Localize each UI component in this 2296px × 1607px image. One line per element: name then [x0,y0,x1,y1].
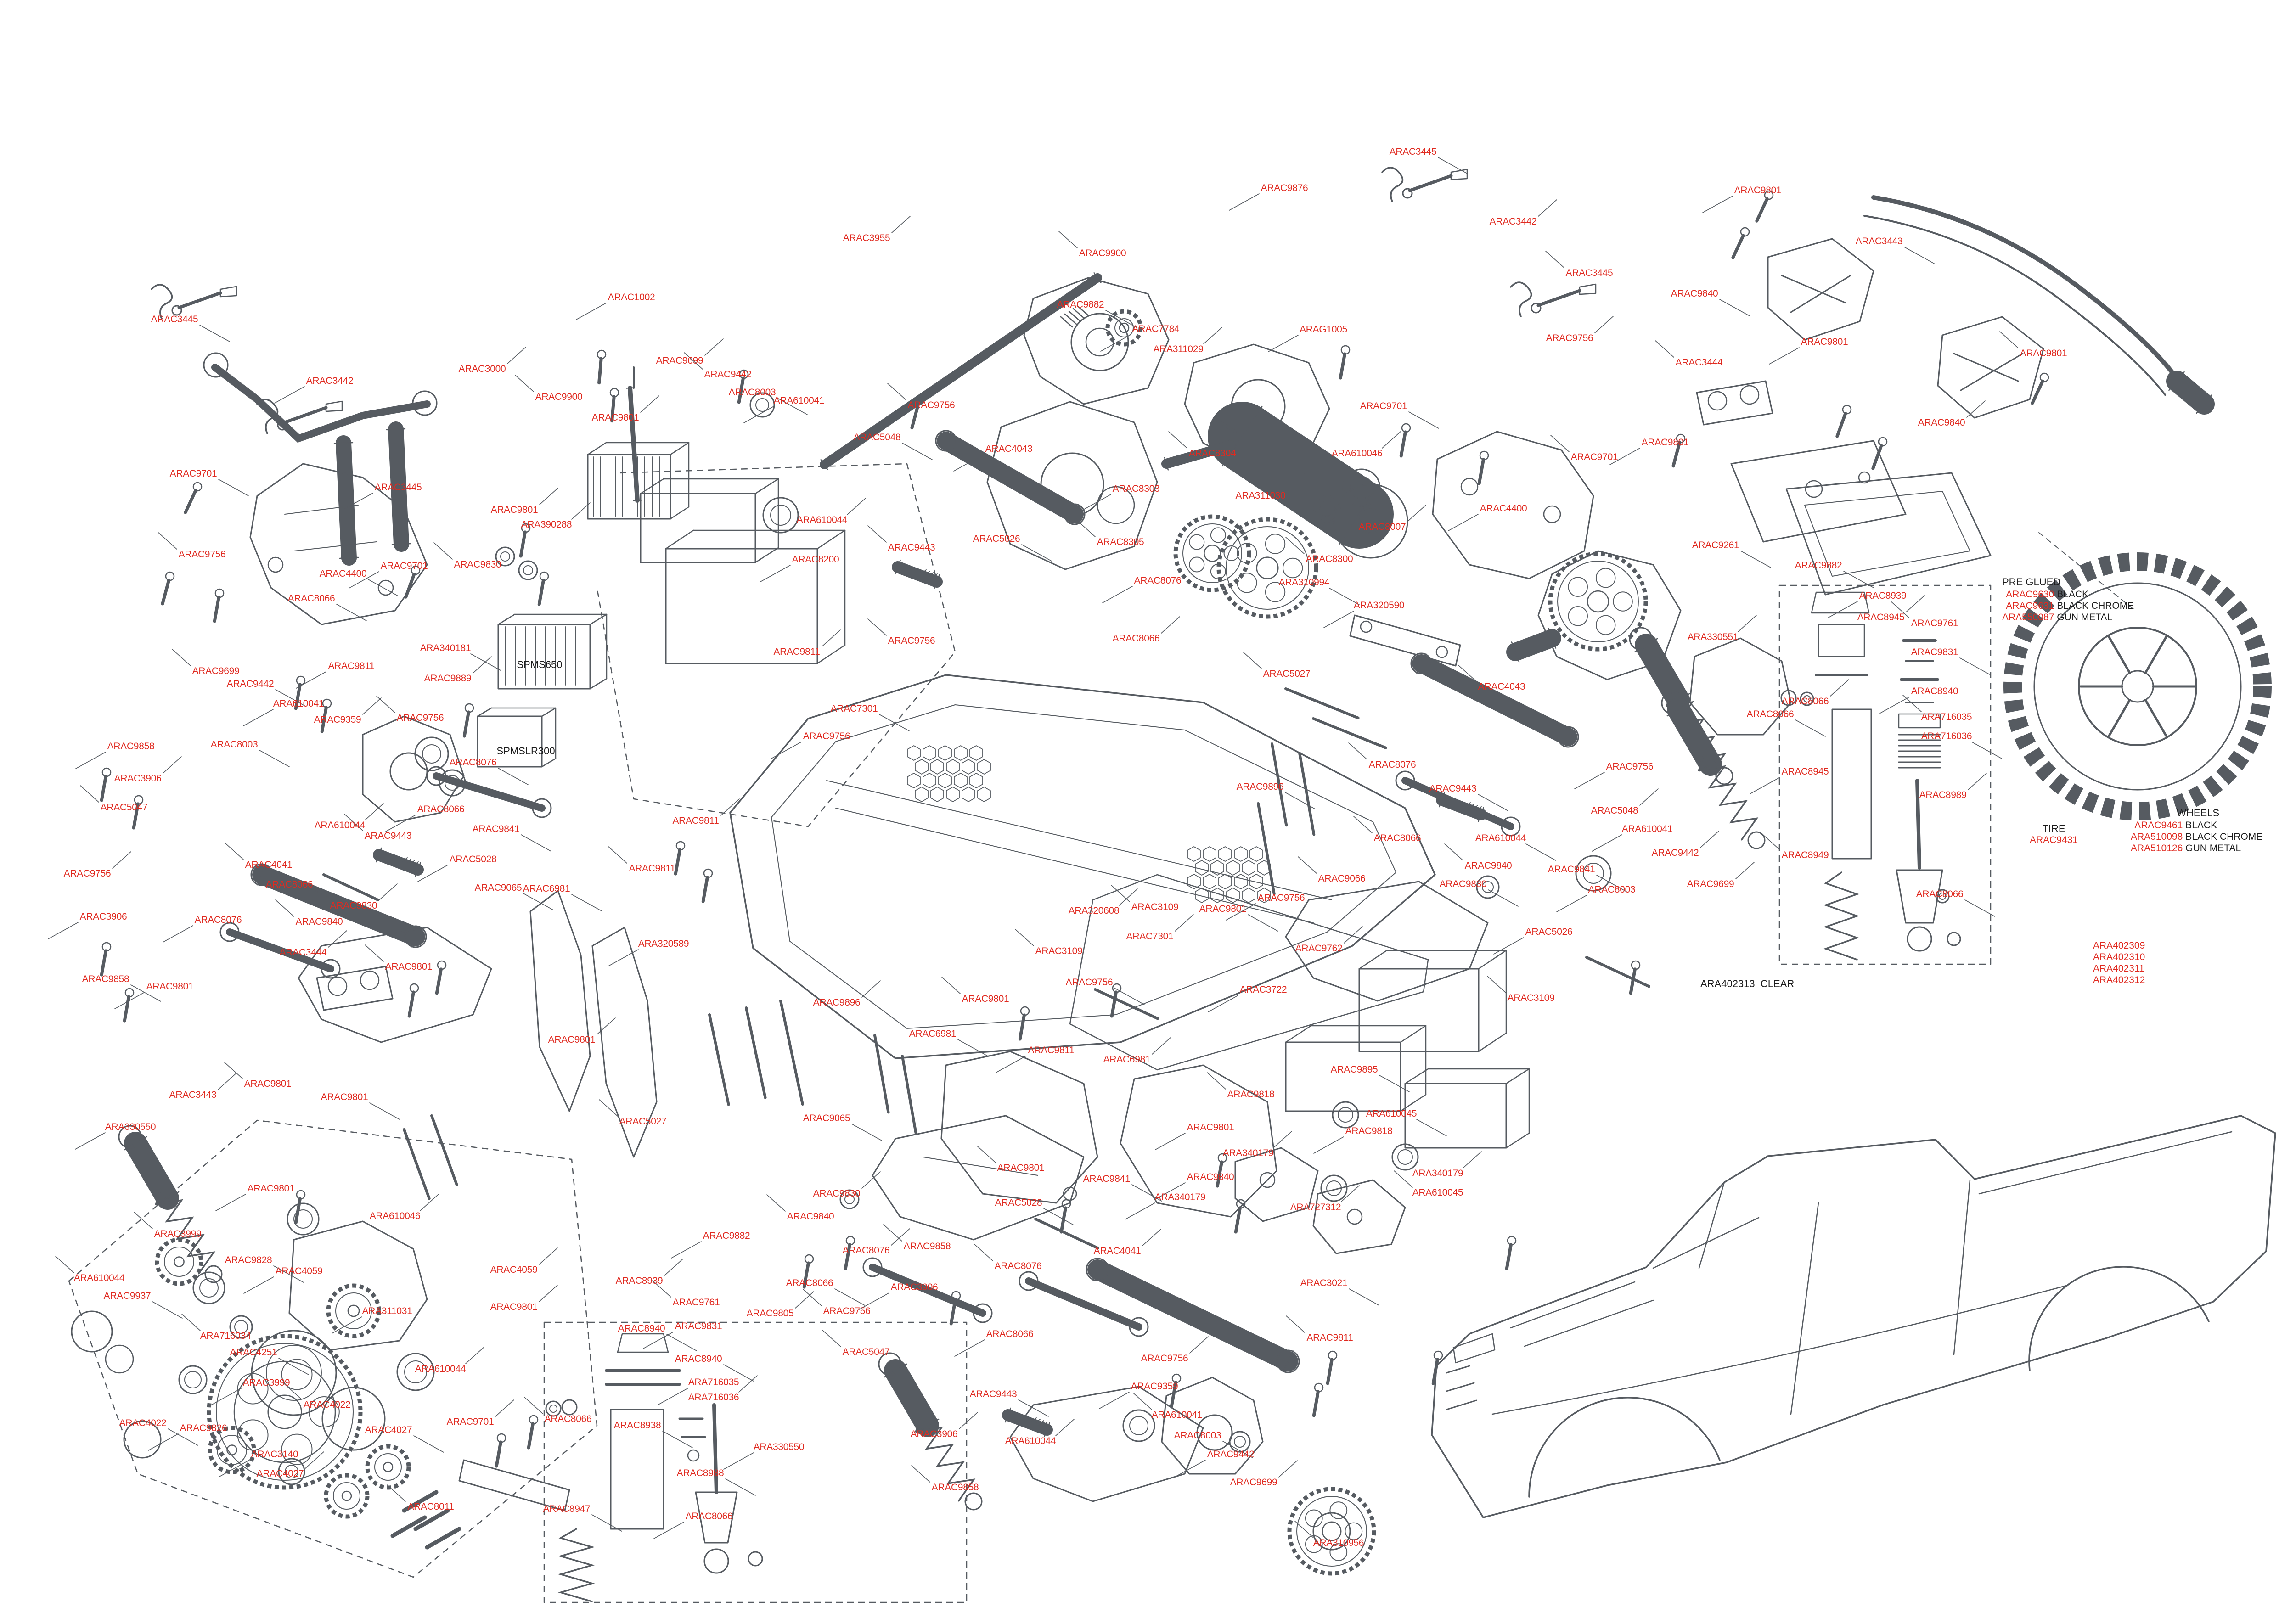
part-label: ARAC8066 [417,804,465,815]
part-label: ARAC9840 [787,1211,834,1222]
part-label: ARAC9818 [1227,1089,1275,1100]
part-label: ARAC6981 [1103,1054,1151,1065]
part-label: ARA310956 [1313,1538,1364,1549]
part-label: ARAC9858 [107,741,155,752]
part-label: ARAC3722 [1240,984,1287,995]
part-label: ARA716036 [688,1392,739,1403]
part-label: ARAC5028 [995,1197,1042,1208]
part-label: ARAC4041 [245,860,293,871]
part-label: ARA610044 [1005,1436,1056,1447]
tire-title: TIRE [2030,823,2078,835]
body-paint-code: ARA402312 [2093,974,2145,986]
part-label: ARAC3000 [459,364,506,375]
part-label: ARA610041 [774,395,825,406]
part-label: ARAC7301 [831,703,878,714]
part-label: ARAC9811 [328,661,374,672]
part-label: ARAC3444 [280,947,327,958]
legend-row: ARAC9630BLACK [2002,589,2137,600]
part-label: ARAC9756 [397,713,444,724]
part-label: ARAC9801 [244,1079,292,1090]
part-label: ARA610046 [370,1211,421,1222]
part-label: ARAC4400 [1480,503,1527,514]
part-label: ARAC9756 [1606,761,1654,772]
part-label: ARAC5048 [854,432,901,443]
legend-row: ARAC9461BLACK [2131,820,2265,831]
part-label: ARAC9801 [490,1302,538,1313]
part-label: ARAC9701 [170,468,217,479]
part-label: ARAC8940 [618,1323,665,1334]
part-label: ARAC8066 [986,1329,1034,1340]
part-label: ARAC9701 [381,561,428,572]
electronics-label: SPMSLR300 [496,745,555,757]
part-label: ARAC9811 [629,863,675,874]
part-label: ARAC9840 [1187,1172,1234,1183]
part-label: ARAC9443 [1429,783,1477,794]
part-label: ARAC9841 [473,824,520,835]
part-label: ARAC3442 [306,376,354,387]
part-label: ARAC3445 [375,482,422,493]
part-label: ARAC9831 [1911,647,1958,658]
part-label: ARAC9443 [365,831,412,842]
pre-glued-title: PRE GLUED [2002,576,2137,588]
part-label: ARAC5047 [101,802,148,813]
part-label: ARAC9841 [1083,1174,1131,1185]
part-label: ARAC9896 [813,997,861,1008]
part-label: ARAC4059 [276,1266,323,1277]
part-label: ARAC9756 [1258,893,1305,904]
part-label: ARA610044 [315,820,366,831]
part-label: ARAC3445 [151,314,198,325]
part-label: ARA311030 [1236,490,1286,501]
part-label: ARAC6981 [523,883,570,894]
part-label: ARAC8066 [266,879,313,890]
part-label: ARAC3444 [1676,357,1723,368]
part-label: ARAC9442 [1652,848,1699,859]
part-label: ARAC5027 [619,1116,667,1127]
part-label: ARAC9858 [82,974,129,985]
legend-part-code: ARA550087 [2002,612,2057,623]
part-label: ARAC8304 [1189,448,1236,459]
part-label: ARAC8200 [792,554,839,565]
part-label: ARAC9801 [548,1034,596,1045]
exploded-parts-diagram: ARAC3445ARAC3442ARAC3000ARAC9900ARAC9701… [0,0,2296,1607]
part-label: ARAC8989 [1919,790,1967,801]
part-label: ARAC3906 [891,1282,938,1293]
part-label: ARA610041 [1152,1410,1203,1421]
part-label: ARAC8066 [786,1278,833,1289]
part-label: ARAC9756 [1546,333,1593,344]
part-label: ARAC8940 [1911,686,1958,697]
part-label: ARAC9801 [2020,348,2067,359]
part-label: ARAC8066 [1747,709,1794,720]
part-label: ARAC9801 [491,505,538,516]
part-label: ARAC8076 [843,1245,890,1256]
part-label: ARAC9756 [888,635,935,646]
legend-row: ARA510126GUN METAL [2131,843,2265,854]
part-label: ARAC9818 [1345,1126,1393,1137]
part-label: ARAC4027 [257,1468,304,1479]
part-label: ARAC8938 [614,1420,661,1431]
part-label: ARAC3140 [251,1449,298,1460]
body-paint-codes: ARA402309ARA402310ARA402311ARA402312 [2093,940,2145,986]
part-label: ARAC9699 [1687,879,1734,890]
part-label: ARAC3906 [80,911,127,922]
part-label: ARAC3021 [1300,1278,1348,1289]
part-label: ARAC9443 [970,1389,1017,1400]
part-label: ARAC9882 [1057,299,1104,310]
part-label: ARAC9801 [1734,185,1782,196]
part-label: ARAC8303 [1113,483,1160,494]
part-label: ARAC9756 [1141,1353,1188,1364]
part-label: ARAC9801 [1642,437,1689,448]
part-label: ARA320590 [1354,600,1405,611]
part-label: ARAC3445 [1566,268,1613,279]
legend-color-name: BLACK [2185,820,2265,831]
part-label: ARAC8945 [1782,766,1829,777]
part-label: ARAC3443 [169,1090,217,1101]
part-label: ARA716036 [1921,731,1972,742]
part-label: ARAC3906 [911,1429,958,1440]
part-label: ARAC7301 [1126,931,1174,942]
part-label: ARAC8076 [450,757,497,768]
part-label: ARAC8939 [1859,590,1907,601]
part-label: ARA716035 [688,1377,739,1388]
part-label: ARA340179 [1412,1168,1463,1179]
part-label: ARA610044 [415,1364,466,1375]
part-label: ARAC9895 [1331,1064,1378,1075]
part-label: ARAC9840 [1918,417,1965,428]
part-label: ARAC3999 [154,1229,202,1240]
part-label: ARA727312 [1290,1202,1341,1213]
part-label: ARAC9762 [1295,943,1343,954]
part-label: ARAC8076 [1134,575,1182,586]
part-label: ARAC9811 [1028,1045,1074,1056]
part-label: ARAC9701 [1360,401,1407,412]
legend-color-name: BLACK CHROME [2185,831,2265,843]
part-label: ARA340179 [1223,1148,1274,1159]
part-label: ARAC9811 [1306,1332,1353,1343]
part-label: ARAC8949 [1782,850,1829,861]
part-label: ARA610045 [1366,1108,1417,1119]
legend-color-name: BLACK CHROME [2057,600,2137,612]
part-label: ARAC8076 [995,1261,1042,1272]
body-paint-code: ARA402310 [2093,951,2145,963]
legend-row: ARA550087GUN METAL [2002,612,2137,623]
part-label: ARAC4022 [304,1399,351,1410]
part-label: ARAC8066 [1916,889,1964,900]
part-label: ARAC9359 [1131,1381,1178,1392]
part-label: ARAC8988 [677,1468,724,1479]
part-label: ARAC9699 [1230,1477,1277,1488]
part-label: ARAC3109 [1131,902,1179,913]
part-label: ARAC9900 [1079,248,1126,259]
part-label: ARAC8003 [729,387,776,398]
body-clear-name: CLEAR [1761,978,1794,989]
part-label: ARA330550 [105,1122,156,1133]
part-label: ARAC9756 [179,549,226,560]
part-label: ARAC9858 [932,1482,979,1493]
part-label: ARAC9442 [1207,1449,1255,1460]
part-label: ARAC9801 [248,1183,295,1194]
part-label: ARA330550 [754,1442,805,1453]
part-label: ARAC9801 [962,994,1009,1005]
part-label: ARAC5026 [973,534,1020,545]
part-label: ARAC9761 [673,1297,720,1308]
part-label: ARAC4059 [490,1264,538,1275]
part-label: ARAC9896 [1237,781,1284,792]
part-label: ARAC9261 [1692,540,1739,551]
part-label: ARAC8007 [1359,522,1406,533]
part-label: ARAC9801 [1801,337,1848,348]
part-label: ARAC9840 [296,916,343,927]
part-label: ARAC8066 [1782,696,1829,707]
part-label: ARAC4043 [985,444,1033,455]
part-label: ARAC9801 [1187,1122,1234,1133]
body-paint-code: ARA402311 [2093,963,2145,974]
part-label: ARAC8945 [1857,612,1905,623]
part-label: ARAC3442 [1490,216,1537,227]
part-label: ARAC9841 [1548,864,1595,875]
part-label: ARAC9065 [803,1113,850,1124]
part-label: ARAC3445 [1390,146,1437,157]
electronics-label: SPMS650 [517,659,562,671]
legend-color-name: BLACK [2057,589,2137,600]
part-label: ARAC3955 [843,233,890,244]
part-label: ARAC8066 [288,593,335,604]
legend-part-code: ARAC9630 [2002,589,2057,600]
legend-row: ARA510098BLACK CHROME [2131,831,2265,843]
part-label: ARAC9699 [192,666,240,677]
part-label: ARAC8939 [616,1275,663,1287]
part-label: ARAC5048 [1591,805,1638,816]
part-label: ARAC9826 [180,1423,227,1434]
tire-code: ARAC9431 [2030,835,2078,846]
part-label: ARAC9442 [227,679,274,690]
part-label: ARAC9701 [447,1416,494,1427]
part-label: ARAC5027 [1263,669,1311,680]
part-label: ARAC9805 [747,1308,794,1319]
body-paint-code: ARA402309 [2093,940,2145,951]
part-label: ARA330551 [1688,632,1739,643]
part-label: ARA311029 [1154,344,1204,355]
part-label: ARAC9443 [888,542,935,553]
pre-glued-rows: ARAC9630BLACKARAC9631BLACK CHROMEARA5500… [2002,589,2137,623]
part-label: ARAC3999 [243,1377,290,1388]
part-label: ARA340179 [1155,1192,1206,1203]
legend-color-name: GUN METAL [2057,612,2137,623]
part-label: ARAC9756 [64,868,111,879]
part-label: ARAC8066 [686,1511,733,1522]
part-label: ARAC8011 [407,1501,454,1512]
part-label: ARAC9882 [703,1231,750,1242]
part-label: ARAC9840 [1671,288,1718,299]
part-label: ARAC4022 [119,1418,167,1429]
wheels-title: WHEELS [2131,807,2265,819]
part-label: ARAC4400 [320,568,367,579]
part-label: ARA610046 [1332,448,1383,459]
part-label: ARA610041 [1622,824,1673,835]
part-label: ARAC8076 [1369,759,1416,770]
part-label: ARAC8003 [1174,1430,1221,1441]
part-label: ARAC4041 [1094,1246,1141,1257]
part-label: ARAC8940 [675,1354,722,1365]
part-label: ARAC3109 [1035,946,1083,957]
part-label: ARAC9801 [385,961,433,972]
part-label: ARAC8305 [1097,537,1144,548]
part-label: ARAC1002 [608,292,655,303]
part-label: ARAC9830 [1440,879,1487,890]
part-label: ARAC8066 [1374,833,1421,844]
part-label: ARA610044 [797,515,848,526]
part-label: ARA610041 [273,698,324,709]
part-label: ARA610044 [74,1273,125,1284]
part-label: ARAC9699 [656,355,703,366]
part-label: ARAC9756 [803,731,850,742]
tire-note: TIRE ARAC9431 [2030,823,2078,846]
part-label: ARAC9831 [675,1321,722,1332]
part-label: ARAC9900 [535,392,583,403]
part-label: ARAC5026 [1525,927,1573,938]
part-label: ARAC9359 [314,714,361,725]
part-label: ARAC4043 [1478,681,1525,692]
part-label: ARA340181 [420,643,471,654]
part-label: ARA311031 [362,1306,412,1317]
part-label: ARAC5047 [843,1347,890,1358]
part-label: ARAC9801 [146,981,194,992]
part-label: ARAC8300 [1306,554,1353,565]
legend-row: ARAC9631BLACK CHROME [2002,600,2137,612]
part-label: ARAC8076 [195,915,242,926]
legend-part-code: ARA510098 [2131,831,2185,843]
body-clear-code: ARA402313 [1700,978,1755,989]
part-label: ARAC9801 [592,412,639,423]
part-label: ARA610044 [1475,833,1526,844]
part-label: ARAC8003 [211,739,258,750]
part-label: ARAC8003 [1588,884,1636,895]
part-label: ARAC9830 [813,1188,861,1199]
part-label: ARA716035 [1921,712,1972,723]
part-label: ARAC3906 [114,773,162,784]
part-label: ARAC9065 [475,882,522,893]
part-label: ARAG1005 [1300,324,1347,335]
part-label: ARAC9889 [424,673,472,684]
part-label: ARAC9858 [904,1241,951,1252]
part-label: ARAC9937 [104,1291,151,1302]
part-label: ARAC3109 [1508,993,1555,1004]
part-label: ARA320589 [638,938,689,950]
part-label: ARAC8066 [1113,633,1160,644]
wheels-legend: WHEELS ARAC9461BLACKARA510098BLACK CHROM… [2131,807,2265,854]
legend-part-code: ARAC9461 [2131,820,2185,831]
legend-part-code: ARAC9631 [2002,600,2057,612]
part-label: ARA610045 [1412,1187,1463,1198]
part-label: ARAC5028 [450,854,497,865]
part-label: ARAC9811 [672,815,719,826]
part-label: ARA320608 [1069,905,1120,916]
pre-glued-legend: PRE GLUED ARAC9630BLACKARAC9631BLACK CHR… [2002,576,2137,623]
part-label: ARAC9830 [454,559,501,570]
part-labels-layer: ARAC3445ARAC3442ARAC3000ARAC9900ARAC9701… [0,0,2296,1607]
part-label: ARAC9701 [1571,452,1618,463]
wheels-rows: ARAC9461BLACKARA510098BLACK CHROMEARA510… [2131,820,2265,854]
part-label: ARAC9876 [1261,183,1308,194]
part-label: ARAC9756 [823,1306,871,1317]
part-label: ARA390288 [521,519,572,530]
part-label: ARAC9882 [1795,560,1842,571]
part-label: ARAC9761 [1911,618,1958,629]
part-label: ARAC9830 [330,900,377,911]
part-label: ARAC9801 [997,1163,1045,1174]
part-label: ARA310994 [1279,577,1330,588]
part-label: ARAC9811 [773,646,820,657]
part-label: ARAC3443 [1856,236,1903,247]
part-label: ARAC6981 [909,1028,957,1039]
part-label: ARAC9801 [1199,904,1247,915]
legend-part-code: ARA510126 [2131,843,2185,854]
part-label: ARAC4027 [365,1425,412,1436]
part-label: ARAC8947 [543,1504,591,1515]
part-label: ARAC9840 [1465,860,1512,871]
body-clear-note: ARA402313 CLEAR [1700,978,1794,990]
part-label: ARAC9066 [1318,873,1366,884]
part-label: ARAC4251 [230,1347,277,1358]
part-label: ARAC8066 [545,1414,592,1425]
part-label: ARAC9442 [704,369,752,380]
part-label: ARAC7784 [1132,324,1180,335]
part-label: ARAC9801 [321,1092,368,1103]
part-label: ARAC9756 [908,400,955,411]
part-label: ARAC9756 [1066,977,1113,988]
part-label: ARAC9828 [225,1255,272,1266]
part-label: ARA716034 [200,1331,251,1342]
legend-color-name: GUN METAL [2185,843,2265,854]
